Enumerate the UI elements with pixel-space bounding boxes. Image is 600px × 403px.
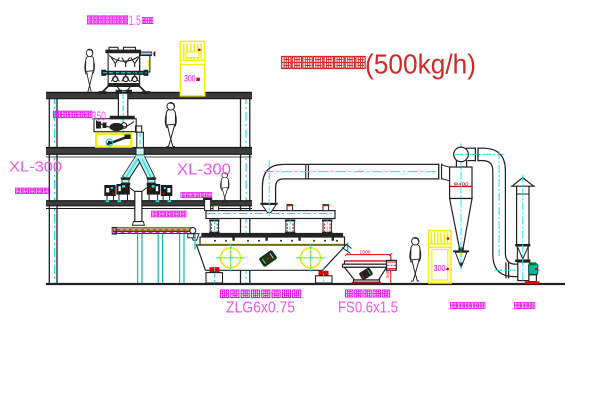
svg-text:300: 300 <box>184 74 196 85</box>
svg-text:1500: 1500 <box>360 250 371 255</box>
svg-text:ZLG6x0.75: ZLG6x0.75 <box>226 300 295 317</box>
svg-text:XL-300: XL-300 <box>177 162 231 179</box>
svg-text:XL-300: XL-300 <box>9 159 62 176</box>
svg-text:1.5: 1.5 <box>129 13 141 28</box>
svg-text:300: 300 <box>434 264 446 273</box>
svg-text:FS0.6x1.5: FS0.6x1.5 <box>338 300 398 317</box>
svg-text:(500kg/h): (500kg/h) <box>365 49 476 80</box>
svg-text:350: 350 <box>92 108 107 123</box>
